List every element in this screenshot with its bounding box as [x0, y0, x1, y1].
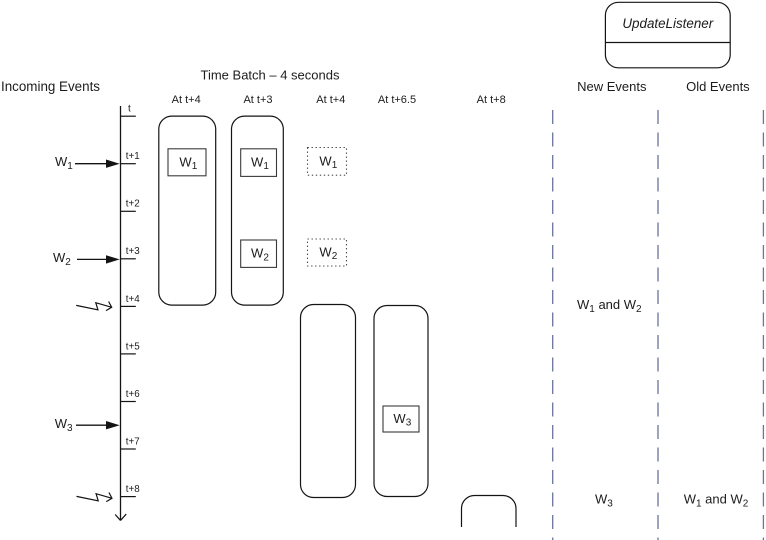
- svg-text:W2: W2: [53, 250, 71, 268]
- svg-text:Incoming Events: Incoming Events: [1, 79, 100, 94]
- svg-text:2: 2: [263, 252, 269, 263]
- svg-text:t+2: t+2: [126, 199, 140, 210]
- svg-text:W: W: [179, 154, 192, 169]
- svg-text:t+4: t+4: [126, 294, 140, 305]
- svg-text:1: 1: [332, 160, 338, 171]
- svg-text:UpdateListener: UpdateListener: [622, 16, 713, 31]
- svg-text:W: W: [319, 154, 332, 169]
- svg-text:Time Batch – 4 seconds: Time Batch – 4 seconds: [201, 68, 340, 83]
- svg-text:3: 3: [406, 418, 412, 429]
- svg-text:t+1: t+1: [126, 151, 140, 162]
- svg-text:W1 and W2: W1 and W2: [684, 491, 749, 509]
- svg-text:At t+6.5: At t+6.5: [378, 94, 416, 106]
- svg-text:1: 1: [192, 161, 198, 172]
- svg-text:t+5: t+5: [126, 341, 140, 352]
- svg-text:W1: W1: [55, 154, 73, 172]
- svg-text:At t+4: At t+4: [172, 94, 201, 106]
- svg-text:W: W: [393, 411, 406, 426]
- svg-text:W: W: [251, 154, 264, 169]
- svg-text:At t+4: At t+4: [316, 94, 345, 106]
- svg-text:W: W: [319, 245, 332, 260]
- svg-text:W3: W3: [55, 416, 73, 434]
- svg-text:t+8: t+8: [126, 484, 140, 495]
- svg-text:t: t: [128, 104, 131, 115]
- svg-text:At t+3: At t+3: [243, 94, 272, 106]
- svg-text:1: 1: [263, 161, 269, 172]
- svg-text:New Events: New Events: [577, 79, 647, 94]
- svg-text:t+6: t+6: [126, 389, 140, 400]
- svg-text:W3: W3: [595, 491, 613, 509]
- svg-text:W1 and W2: W1 and W2: [577, 297, 642, 315]
- svg-text:t+3: t+3: [126, 246, 140, 257]
- svg-text:t+7: t+7: [126, 436, 140, 447]
- svg-text:Old Events: Old Events: [686, 79, 750, 94]
- svg-text:2: 2: [332, 251, 338, 262]
- svg-text:At t+8: At t+8: [477, 94, 506, 106]
- svg-text:W: W: [251, 246, 264, 261]
